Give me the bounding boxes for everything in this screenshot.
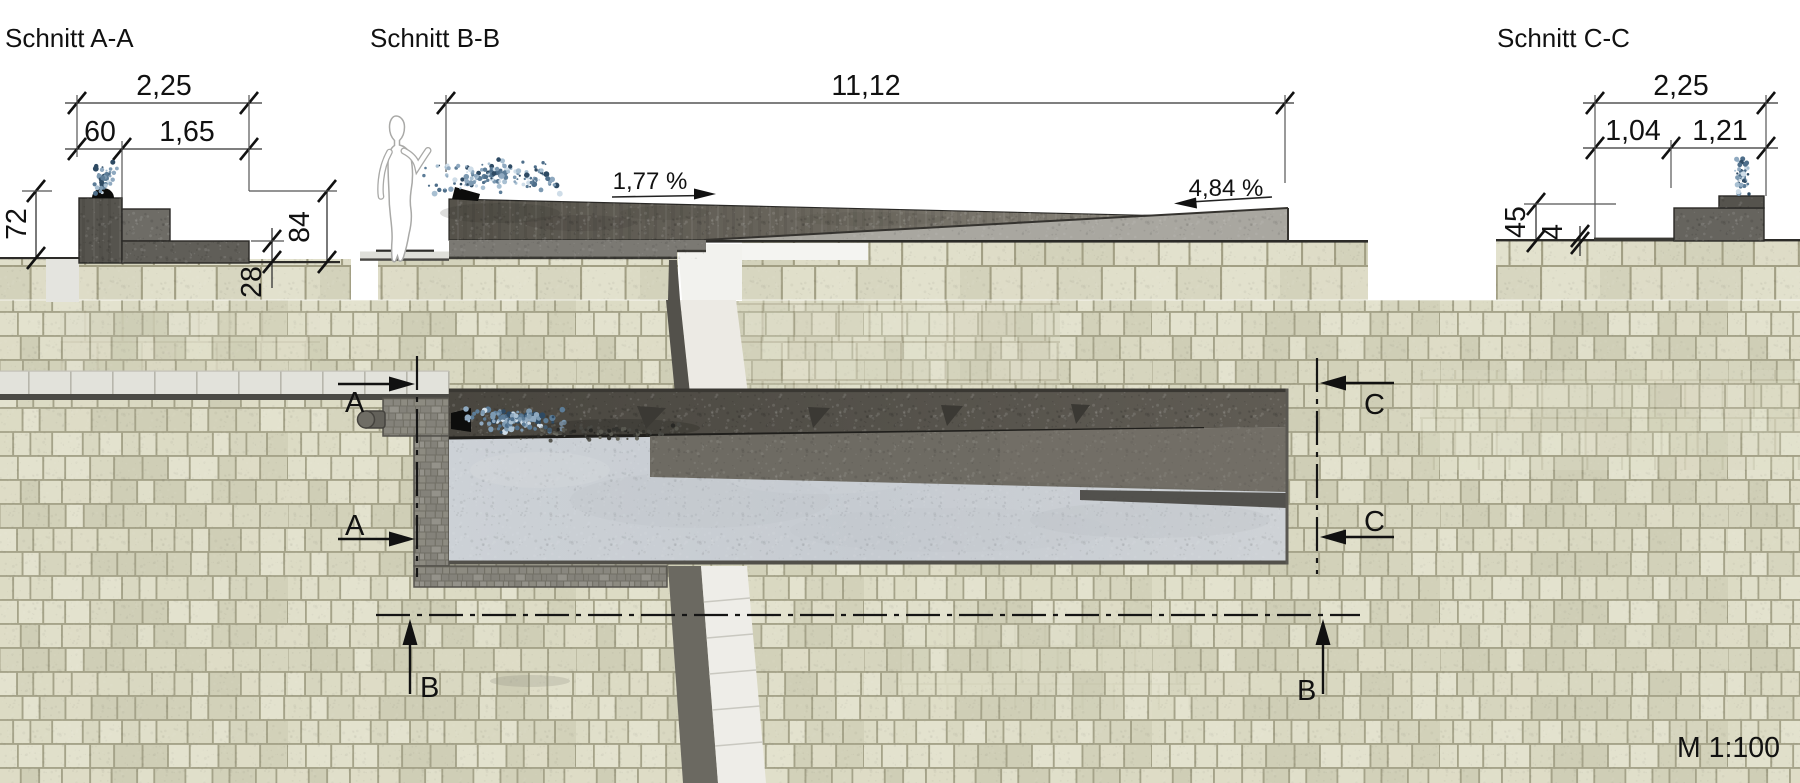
svg-text:72: 72 [1, 208, 33, 240]
svg-text:60: 60 [84, 116, 116, 148]
svg-text:C: C [1364, 389, 1385, 421]
svg-text:A: A [345, 387, 365, 419]
svg-text:B: B [420, 672, 439, 704]
svg-text:1,21: 1,21 [1692, 115, 1747, 147]
svg-text:Schnitt C-C: Schnitt C-C [1497, 23, 1630, 53]
svg-text:1,77 %: 1,77 % [613, 168, 688, 195]
svg-text:1,04: 1,04 [1605, 115, 1661, 147]
svg-text:B: B [1297, 675, 1316, 707]
svg-text:M 1:100: M 1:100 [1677, 732, 1780, 764]
svg-text:C: C [1364, 506, 1385, 538]
svg-text:28: 28 [236, 266, 268, 298]
svg-text:11,12: 11,12 [831, 70, 900, 102]
svg-text:45: 45 [1500, 206, 1532, 238]
svg-text:2,25: 2,25 [1653, 70, 1708, 102]
svg-text:84: 84 [284, 211, 316, 243]
svg-text:1,65: 1,65 [159, 116, 214, 148]
svg-text:Schnitt B-B: Schnitt B-B [370, 23, 500, 53]
svg-text:4: 4 [1537, 224, 1569, 240]
svg-text:2,25: 2,25 [136, 70, 191, 102]
svg-text:Schnitt A-A: Schnitt A-A [5, 23, 134, 53]
svg-text:A: A [345, 510, 365, 542]
